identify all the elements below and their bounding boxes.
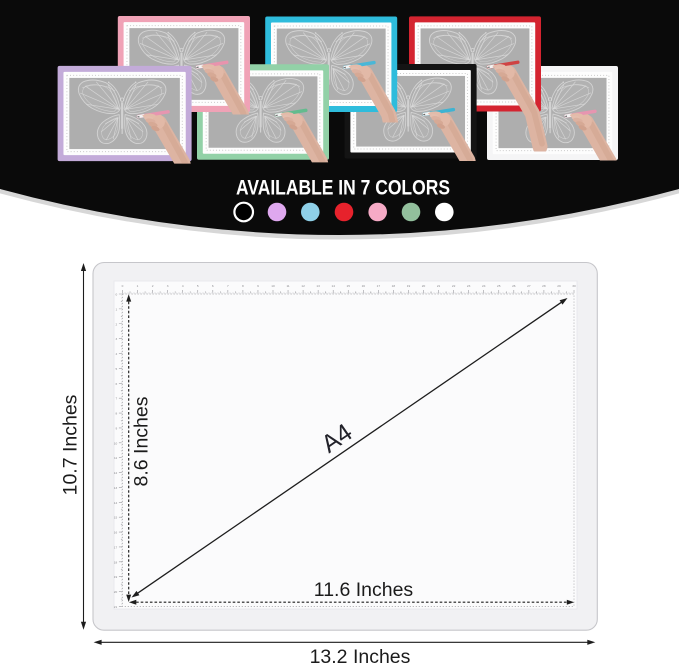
svg-text:11: 11 <box>286 284 289 288</box>
svg-text:16: 16 <box>362 284 366 288</box>
svg-text:12: 12 <box>114 471 118 475</box>
svg-text:6: 6 <box>212 284 214 288</box>
svg-text:2: 2 <box>152 284 154 288</box>
svg-text:12: 12 <box>301 284 305 288</box>
svg-text:8: 8 <box>115 412 117 416</box>
svg-text:10: 10 <box>114 441 118 445</box>
svg-text:5: 5 <box>115 367 117 371</box>
svg-text:11.6 Inches: 11.6 Inches <box>314 579 414 601</box>
svg-text:11: 11 <box>114 456 117 460</box>
svg-text:0: 0 <box>115 293 117 297</box>
svg-text:15: 15 <box>347 284 351 288</box>
svg-text:28: 28 <box>542 284 546 288</box>
svg-text:1: 1 <box>137 284 139 288</box>
svg-text:13.2 Inches: 13.2 Inches <box>310 646 411 665</box>
svg-text:5: 5 <box>197 284 199 288</box>
svg-text:16: 16 <box>114 531 118 535</box>
svg-text:0: 0 <box>122 284 124 288</box>
svg-text:AVAILABLE IN 7 COLORS: AVAILABLE IN 7 COLORS <box>236 177 450 200</box>
svg-text:4: 4 <box>182 284 184 288</box>
svg-text:1: 1 <box>115 307 117 311</box>
svg-text:20: 20 <box>422 284 426 288</box>
svg-text:3: 3 <box>167 284 169 288</box>
svg-text:13: 13 <box>114 486 118 490</box>
svg-text:4: 4 <box>115 352 117 356</box>
svg-text:6: 6 <box>115 382 117 386</box>
svg-text:19: 19 <box>407 284 411 288</box>
svg-text:21: 21 <box>114 605 118 609</box>
svg-text:8: 8 <box>242 284 244 288</box>
svg-text:26: 26 <box>512 284 516 288</box>
svg-text:25: 25 <box>497 284 501 288</box>
svg-text:23: 23 <box>467 284 471 288</box>
svg-text:2: 2 <box>115 322 117 326</box>
svg-text:10: 10 <box>271 284 275 288</box>
svg-text:3: 3 <box>115 337 117 341</box>
svg-text:8.6 Inches: 8.6 Inches <box>131 396 153 486</box>
svg-text:24: 24 <box>482 284 486 288</box>
svg-text:19: 19 <box>114 575 118 579</box>
svg-text:7: 7 <box>115 397 117 401</box>
svg-text:20: 20 <box>114 590 118 594</box>
svg-text:21: 21 <box>437 284 441 288</box>
svg-text:17: 17 <box>114 545 118 549</box>
svg-text:14: 14 <box>331 284 335 288</box>
svg-text:13: 13 <box>316 284 320 288</box>
svg-text:30: 30 <box>572 284 576 288</box>
svg-text:9: 9 <box>257 284 259 288</box>
svg-text:22: 22 <box>452 284 456 288</box>
svg-text:14: 14 <box>114 501 118 505</box>
svg-text:27: 27 <box>527 284 531 288</box>
svg-text:17: 17 <box>377 284 381 288</box>
svg-text:10.7 Inches: 10.7 Inches <box>60 394 82 495</box>
svg-text:18: 18 <box>114 560 118 564</box>
svg-text:7: 7 <box>227 284 229 288</box>
svg-text:15: 15 <box>114 516 118 520</box>
svg-text:29: 29 <box>557 284 561 288</box>
svg-text:9: 9 <box>115 426 117 430</box>
svg-text:18: 18 <box>392 284 396 288</box>
